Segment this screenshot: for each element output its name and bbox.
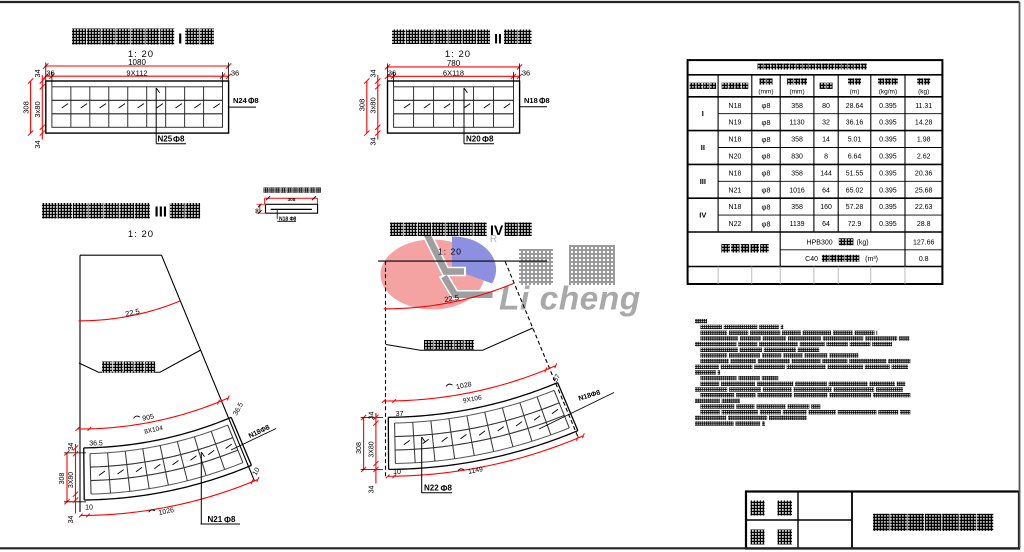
svg-text:φ8: φ8 [761, 118, 770, 127]
svg-text:Φ: Φ [482, 134, 489, 144]
svg-text:34: 34 [33, 69, 42, 77]
svg-text:0.395: 0.395 [879, 187, 897, 194]
svg-text:N18: N18 [524, 96, 538, 105]
svg-text:N19: N19 [729, 120, 742, 127]
svg-text:N21: N21 [208, 515, 223, 524]
svg-text:127.66: 127.66 [913, 239, 935, 246]
svg-text:8: 8 [489, 135, 494, 144]
svg-text:80: 80 [822, 103, 830, 110]
svg-text:36.16: 36.16 [846, 120, 864, 127]
svg-text:N25: N25 [158, 135, 173, 144]
svg-text:0.395: 0.395 [879, 221, 897, 228]
svg-text:IV: IV [699, 211, 706, 220]
svg-text:0.395: 0.395 [879, 154, 897, 161]
svg-text:37: 37 [396, 411, 404, 418]
svg-text:14.28: 14.28 [915, 120, 933, 127]
svg-text:25.68: 25.68 [915, 187, 933, 194]
svg-text:(m³): (m³) [865, 256, 878, 263]
svg-text:N24: N24 [233, 96, 248, 105]
svg-text:780: 780 [447, 59, 461, 68]
svg-text:0.395: 0.395 [879, 170, 897, 177]
svg-text:28.64: 28.64 [846, 103, 864, 110]
svg-text:34: 34 [369, 137, 378, 145]
svg-text:(mm): (mm) [789, 89, 804, 96]
svg-text:III: III [700, 177, 706, 186]
svg-text:358: 358 [791, 103, 803, 110]
svg-text:34: 34 [369, 486, 376, 494]
svg-text:60: 60 [255, 208, 260, 214]
svg-text:22.63: 22.63 [915, 204, 933, 211]
svg-text:8: 8 [824, 154, 828, 161]
svg-text:57.28: 57.28 [846, 204, 864, 211]
svg-text:0.395: 0.395 [879, 103, 897, 110]
svg-text:32: 32 [822, 120, 830, 127]
svg-text:6X118: 6X118 [443, 69, 464, 78]
svg-text:144: 144 [820, 170, 832, 177]
svg-text:N18: N18 [729, 204, 742, 211]
svg-text:14: 14 [822, 137, 830, 144]
svg-text:5.01: 5.01 [848, 137, 862, 144]
svg-text:34: 34 [33, 140, 42, 148]
svg-text:φ8: φ8 [761, 202, 770, 211]
svg-text:8: 8 [180, 135, 185, 144]
svg-text:φ8: φ8 [761, 186, 770, 195]
svg-text:N20: N20 [729, 154, 742, 161]
svg-text:N20: N20 [466, 135, 481, 144]
svg-text:3x80: 3x80 [369, 97, 378, 113]
svg-text:160: 160 [820, 204, 832, 211]
svg-text:N18: N18 [729, 137, 742, 144]
svg-text:36: 36 [46, 68, 54, 77]
svg-text:φ8: φ8 [761, 135, 770, 144]
svg-text:308: 308 [287, 197, 295, 203]
svg-text:51.55: 51.55 [846, 170, 864, 177]
svg-text:308: 308 [59, 473, 66, 485]
svg-text:Φ: Φ [441, 483, 448, 493]
svg-text:3X80: 3X80 [68, 472, 75, 488]
svg-text:HPB300: HPB300 [807, 239, 833, 246]
svg-text:II: II [701, 143, 705, 152]
svg-text:(kg/m): (kg/m) [879, 89, 897, 96]
svg-text:N18: N18 [729, 103, 742, 110]
svg-text:308: 308 [22, 101, 31, 114]
svg-text:1: 20: 1: 20 [438, 247, 462, 257]
svg-text:IV: IV [490, 222, 504, 238]
svg-text:0.395: 0.395 [879, 137, 897, 144]
svg-text:308: 308 [356, 442, 363, 454]
svg-text:28.8: 28.8 [917, 221, 931, 228]
svg-text:I: I [702, 109, 704, 118]
svg-text:8: 8 [448, 484, 453, 493]
svg-text:(kg): (kg) [857, 239, 869, 246]
svg-text:34: 34 [68, 443, 75, 451]
svg-text:φ8: φ8 [761, 101, 770, 110]
svg-text:358: 358 [791, 204, 803, 211]
svg-text:1139: 1139 [790, 221, 805, 228]
svg-text:1130: 1130 [790, 120, 805, 127]
svg-text:φ8: φ8 [761, 169, 770, 178]
svg-text:C40: C40 [805, 256, 818, 263]
svg-text:φ8: φ8 [761, 152, 770, 161]
svg-text:3X80: 3X80 [369, 441, 376, 457]
svg-text:34: 34 [369, 69, 378, 77]
svg-text:(kg): (kg) [918, 89, 929, 96]
svg-text:36.5: 36.5 [89, 441, 103, 448]
svg-text:φ8: φ8 [761, 219, 770, 228]
svg-text:I: I [178, 31, 182, 48]
svg-text:9X112: 9X112 [126, 68, 147, 77]
svg-text:1016: 1016 [789, 187, 805, 194]
svg-text:830: 830 [791, 154, 803, 161]
svg-text:10: 10 [393, 469, 401, 476]
svg-text:1.98: 1.98 [917, 137, 931, 144]
svg-text:1: 20: 1: 20 [128, 229, 154, 240]
svg-text:8: 8 [546, 96, 550, 105]
svg-text:308: 308 [358, 99, 367, 112]
svg-text:36: 36 [388, 69, 396, 78]
svg-text:1080: 1080 [128, 58, 146, 67]
svg-text:II: II [494, 31, 502, 47]
svg-text:20.36: 20.36 [915, 170, 933, 177]
svg-text:34: 34 [369, 412, 376, 420]
svg-text:11.31: 11.31 [915, 103, 932, 110]
svg-text:6.64: 6.64 [848, 154, 862, 161]
svg-text:N22: N22 [729, 221, 742, 228]
svg-text:36: 36 [522, 69, 530, 78]
svg-text:72.9: 72.9 [848, 221, 862, 228]
svg-text:65.02: 65.02 [846, 187, 864, 194]
svg-text:(m): (m) [850, 89, 860, 96]
svg-text:358: 358 [791, 137, 803, 144]
svg-text:8: 8 [231, 515, 236, 524]
svg-text:2.62: 2.62 [917, 154, 931, 161]
svg-text:64: 64 [822, 221, 830, 228]
svg-text:10: 10 [85, 505, 93, 512]
svg-text:8: 8 [255, 96, 259, 105]
svg-text:0.8: 0.8 [919, 256, 929, 263]
svg-text:36: 36 [231, 68, 239, 77]
svg-text:III: III [155, 204, 168, 221]
svg-text:Φ: Φ [173, 134, 180, 144]
svg-text:358: 358 [791, 170, 803, 177]
svg-text:N21: N21 [729, 187, 742, 194]
svg-text:0.395: 0.395 [879, 120, 897, 127]
svg-text:3x80: 3x80 [33, 101, 42, 117]
svg-text:(mm): (mm) [758, 89, 773, 96]
svg-text:34: 34 [68, 516, 75, 524]
svg-text:Φ: Φ [224, 514, 231, 524]
svg-text:N18: N18 [729, 170, 742, 177]
svg-text:N22: N22 [424, 484, 439, 493]
svg-text:0.395: 0.395 [879, 204, 897, 211]
svg-text:64: 64 [822, 187, 830, 194]
